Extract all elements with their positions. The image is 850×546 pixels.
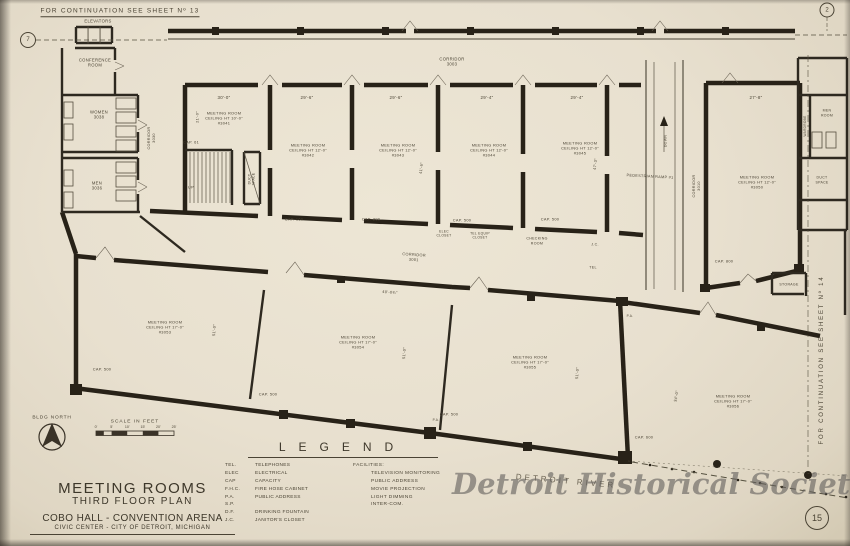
label-pa-1: P.A. <box>433 418 440 422</box>
legend-row: F.H.C.FIRE HOSE CABINET <box>225 485 353 493</box>
dim-3041-width: 30'-0" <box>218 95 231 101</box>
legend-row: D.F.DRINKING FOUNTAIN <box>225 509 353 517</box>
legend-def-text: FIRE HOSE CABINET <box>255 487 308 492</box>
label-women-room: WOMEN 3038 <box>90 110 108 121</box>
label-checking-room: CHECKING ROOM <box>526 236 547 245</box>
ramp-arrow-icon <box>660 116 668 126</box>
legend-facilities: FACILITIES: TELEVISION MONITORINGPUBLIC … <box>353 462 460 524</box>
legend-def-text: DRINKING FOUNTAIN <box>255 510 309 515</box>
room-3055: MEETING ROOM CEILING HT 17'-0" #3055 <box>511 354 549 369</box>
legend-def-text: JANITOR'S CLOSET <box>255 518 305 523</box>
cap-3050: CAP. 800 <box>715 258 734 263</box>
label-pa-2: P.A. <box>627 314 634 318</box>
cap-3043: CAP. 200 <box>362 216 381 221</box>
legend-facility-item: LIGHT DIMMING <box>371 493 460 501</box>
dim-3044-width: 29'-4" <box>481 95 494 101</box>
dim-3054-depth: 51'-0" <box>401 347 407 359</box>
legend-facilities-title: FACILITIES: <box>353 462 460 470</box>
cap-3053: CAP. 500 <box>93 366 112 371</box>
legend-row: ELECELECTRICAL <box>225 470 353 478</box>
dim-3043-width: 29'-6" <box>390 95 403 101</box>
cap-3042: CAP. 160 <box>285 216 304 221</box>
building-name: COBO HALL - CONVENTION ARENA <box>30 513 235 524</box>
legend: LEGEND TEL.TELEPHONESELECELECTRICALCAPCA… <box>225 440 460 524</box>
label-elevators: ELEVATORS <box>84 18 111 23</box>
cap-3045: CAP. 500 <box>541 216 560 221</box>
legend-def-text: TELEPHONES <box>255 463 290 468</box>
grid-marker-2: 2 <box>820 3 835 18</box>
dim-3050-width: 27'-8" <box>750 95 763 101</box>
label-tel-equip-closet: TEL EQUIP CLOSET <box>470 232 490 241</box>
detail-lines <box>190 62 675 290</box>
legend-row: P.A.PUBLIC ADDRESS <box>225 493 353 501</box>
label-corridor-3030: CORRIDOR 3030 <box>147 126 157 149</box>
legend-abbreviations: TEL.TELEPHONESELECELECTRICALCAPCAPACITYF… <box>225 462 353 524</box>
sheet-number-badge: 15 <box>805 506 829 530</box>
legend-title: LEGEND <box>248 440 438 458</box>
label-duct-space-right: DUCT SPACE <box>815 175 828 184</box>
label-storage: STORAGE <box>779 283 798 288</box>
legend-facility-item: INTER-COM. <box>371 501 460 509</box>
cap-3054: CAP. 500 <box>259 391 278 396</box>
legend-facility-item: PUBLIC ADDRESS <box>371 478 460 486</box>
legend-abbr-text: ELEC <box>225 471 255 476</box>
title-block: MEETING ROOMS THIRD FLOOR PLAN COBO HALL… <box>30 480 235 535</box>
door-swings <box>96 21 756 315</box>
label-corridor-3003: CORRIDOR 3003 <box>439 57 464 68</box>
legend-def-text: CAPACITY <box>255 479 281 484</box>
drawing-subtitle: THIRD FLOOR PLAN <box>30 496 235 507</box>
label-tel: TEL <box>589 266 597 271</box>
room-3050: MEETING ROOM CEILING HT 12'-0" #3050 <box>738 174 776 189</box>
dim-3041-depth: 21'-0" <box>194 111 199 123</box>
scale-tick: 0' <box>95 425 98 429</box>
cap-3041: CAP. 61 <box>183 139 199 144</box>
scale-bar-graphic <box>96 431 174 436</box>
label-men-room-left: MEN 3036 <box>92 181 103 192</box>
legend-row: CAPCAPACITY <box>225 478 353 486</box>
label-duct-space-stairs: DUCT SPACE <box>248 173 257 186</box>
legend-def-text: ELECTRICAL <box>255 471 288 476</box>
room-3044: MEETING ROOM CEILING HT 12'-0" #3044 <box>470 142 508 157</box>
label-men-room-right: MEN ROOM <box>821 108 833 117</box>
medium-walls <box>62 27 847 430</box>
building-location: CIVIC CENTER - CITY OF DETROIT, MICHIGAN <box>30 525 235 535</box>
legend-facility-item: MOVIE PROJECTION <box>371 485 460 493</box>
scale-tick: 25' <box>172 425 177 429</box>
label-conference-room: CONFERENCE ROOM <box>79 58 111 69</box>
bldg-north-label: BLDG NORTH <box>32 416 71 421</box>
cap-3055: CAP. 500 <box>440 411 459 416</box>
legend-row: J.C.JANITOR'S CLOSET <box>225 517 353 525</box>
drawing-sheet: FOR CONTINUATION SEE SHEET Nº 13 FOR CON… <box>0 0 850 546</box>
label-corridor-3001: CORRIDOR 3001 <box>402 251 426 263</box>
grid-marker-7: 7 <box>20 32 36 48</box>
room-3041: MEETING ROOM CEILING HT 10'-0" #3041 <box>205 110 243 125</box>
dim-3054-top: 40'-0¾" <box>382 289 398 295</box>
label-corridor-3010: CORRIDOR 3010 <box>692 174 702 197</box>
room-3042: MEETING ROOM CEILING HT 12'-0" #3042 <box>289 142 327 157</box>
legend-facility-item: TELEVISION MONITORING <box>371 470 460 478</box>
dim-3053-depth: 51'-0" <box>211 324 217 336</box>
scale-tick: 5' <box>110 425 113 429</box>
watermark: Detroit Historical Society <box>452 467 832 501</box>
continuation-note-top: FOR CONTINUATION SEE SHEET Nº 13 <box>41 7 200 17</box>
label-up: UP <box>188 184 194 189</box>
cap-3056: CAP. 600 <box>635 434 654 439</box>
north-arrow-icon <box>39 423 65 450</box>
dim-3045-width: 29'-4" <box>571 95 584 101</box>
legend-row: S.P. <box>225 501 353 509</box>
label-elec-closet: ELEC CLOSET <box>437 230 452 239</box>
room-3045: MEETING ROOM CEILING HT 12'-0" #3045 <box>561 140 599 155</box>
room-3054: MEETING ROOM CEILING HT 17'-0" #3054 <box>339 334 377 349</box>
legend-row: TEL.TELEPHONES <box>225 462 353 470</box>
label-wardrobe: WARDROBE <box>803 115 807 136</box>
label-jc: J.C. <box>591 243 599 248</box>
fixtures <box>64 27 836 208</box>
dim-3055-depth: 51'-0" <box>574 367 580 379</box>
room-3053: MEETING ROOM CEILING HT 17'-0" #3053 <box>146 319 184 334</box>
scale-tick: 20' <box>156 425 161 429</box>
legend-abbr-text: TEL. <box>225 463 255 468</box>
legend-def-text: PUBLIC ADDRESS <box>255 495 301 500</box>
room-3056: MEETING ROOM CEILING HT 17'-0" #3056 <box>714 393 752 408</box>
scale-bar-label: SCALE IN FEET <box>111 420 159 425</box>
drawing-title: MEETING ROOMS <box>30 480 235 497</box>
scale-tick: 10' <box>125 425 130 429</box>
thin-walls <box>168 39 795 292</box>
scale-tick: 15' <box>140 425 145 429</box>
cap-3044: CAP. 500 <box>453 217 472 222</box>
room-3043: MEETING ROOM CEILING HT 12'-0" #3043 <box>379 142 417 157</box>
dim-3042-width: 29'-6" <box>301 95 314 101</box>
continuation-note-right: FOR CONTINUATION SEE SHEET Nº 14 <box>819 276 825 445</box>
label-down: DOWN <box>664 135 669 147</box>
